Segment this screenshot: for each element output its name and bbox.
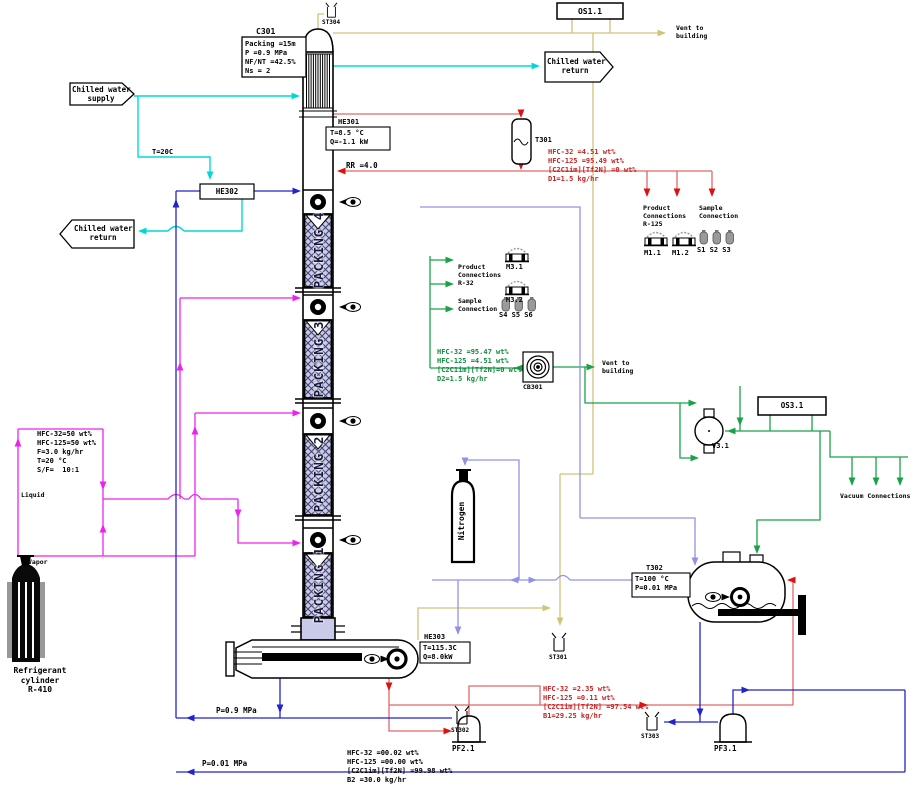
pf31-vessel — [714, 714, 752, 742]
s123-label: S1 S2 S3 — [697, 246, 731, 255]
refrigerant-cylinder — [7, 556, 45, 662]
feed-l2: HFC-125=50 wt% — [37, 439, 96, 448]
c301-info-l3: NF/NT =42.5% — [245, 58, 296, 67]
nitrogen-label: Nitrogen — [457, 486, 469, 556]
os31-label: OS3.1 — [758, 401, 826, 410]
chw-return-top-line2: return — [547, 66, 603, 75]
t302-vessel — [688, 552, 806, 635]
d1-l4: D1=1.5 kg/hr — [548, 175, 637, 184]
c301-info-l4: Ns = 2 — [245, 67, 296, 76]
he303-title: HE303 — [424, 633, 445, 642]
vapor-label: Vapor — [28, 559, 48, 567]
pipe-vent — [318, 14, 664, 640]
stream-d1-label: HFC-32 =4.51 wt%HFC-125 =95.49 wt%[C2C1i… — [548, 148, 637, 184]
r32-product-label: ProductConnectionsR-32 — [458, 264, 501, 287]
c301-info: Packing =15mP =0.9 MPaNF/NT =42.5%Ns = 2 — [245, 40, 296, 76]
st303-label: ST303 — [641, 733, 659, 740]
sight-glass-icons — [339, 198, 361, 545]
packing1-label: PACKING 1 — [311, 537, 325, 633]
pipe-solvent — [176, 191, 905, 772]
chw-return-left-label: Chilled waterreturn — [74, 224, 132, 242]
c301-title: C301 — [256, 27, 275, 37]
r125-product-label: ProductConnectionsR-125 — [643, 205, 686, 228]
r32-product-l3: R-32 — [458, 280, 501, 288]
vent-top-label: Vent tobuilding — [676, 25, 707, 41]
t301-vessel — [512, 119, 531, 164]
m32-label: M3.2 — [506, 296, 523, 305]
r32-sample-label: SampleConnection — [458, 298, 497, 314]
c301-info-l1: Packing =15m — [245, 40, 296, 49]
c301-info-l2: P =0.9 MPa — [245, 49, 296, 58]
st302-label: ST302 — [451, 727, 469, 734]
he303-info-l2: Q=8.0kW — [423, 653, 457, 662]
d2-l2: HFC-125 =4.51 wt% — [437, 357, 521, 366]
d1-l1: HFC-32 =4.51 wt% — [548, 148, 637, 157]
b1-l4: B1=29.25 kg/hr — [543, 712, 648, 721]
p-high-label: P=0.9 MPa — [216, 706, 257, 715]
b2-l3: [C2C1im][Tf2N] =99.98 wt% — [347, 767, 452, 776]
refrig-l3: R-410 — [0, 685, 80, 695]
connection-icons — [502, 230, 734, 311]
b1-l1: HFC-32 =2.35 wt% — [543, 685, 648, 694]
t302-info: T=100 °CP=0.01 MPa — [635, 575, 677, 593]
p-low-label: P=0.01 MPa — [202, 759, 247, 768]
t302-title: T302 — [646, 564, 663, 573]
vent-arrowheads — [543, 30, 667, 626]
b1-l2: HFC-125 =0.11 wt% — [543, 694, 648, 703]
st304-label: ST304 — [322, 19, 340, 26]
stream-d2-label: HFC-32 =95.47 wt%HFC-125 =4.51 wt%[C2C1i… — [437, 348, 521, 384]
vent-top-line2: building — [676, 33, 707, 41]
chw-return-top-label: Chilled waterreturn — [547, 57, 603, 75]
pipe-product-r32 — [430, 256, 908, 552]
he301-info-l2: Q=-1.1 kW — [330, 138, 368, 147]
cb301-trap — [523, 352, 553, 382]
stream-feed-label: HFC-32=50 wt%HFC-125=50 wt%F=3.0 kg/hrT=… — [37, 430, 96, 475]
diagram-canvas — [0, 0, 913, 787]
feed-l1: HFC-32=50 wt% — [37, 430, 96, 439]
he301-info: T=8.5 °CQ=-1.1 kW — [330, 129, 368, 147]
t301-label: T301 — [535, 136, 552, 145]
stream-b2-label: HFC-32 =00.02 wt%HFC-125 =00.00 wt%[C2C1… — [347, 749, 452, 785]
r32-sample-l2: Connection — [458, 306, 497, 314]
chw-supply-label: Chilled watersupply — [72, 85, 130, 103]
b2-l1: HFC-32 =00.02 wt% — [347, 749, 452, 758]
t302-info-l1: T=100 °C — [635, 575, 677, 584]
b2-l4: B2 =30.0 kg/hr — [347, 776, 452, 785]
magenta-arrowheads — [15, 295, 301, 547]
vacuum-label: Vacuum Connections — [840, 493, 910, 501]
he301-title: HE301 — [338, 118, 359, 127]
t20c-label: T=20C — [152, 148, 173, 157]
he301-info-l1: T=8.5 °C — [330, 129, 368, 138]
v31-label: V3.1 — [712, 442, 729, 451]
d1-l3: [C2C1im][Tf2N] =0 wt% — [548, 166, 637, 175]
stream-b1-label: HFC-32 =2.35 wt%HFC-125 =0.11 wt%[C2C1im… — [543, 685, 648, 721]
chw-return-top-line1: Chilled water — [547, 57, 603, 66]
d2-l1: HFC-32 =95.47 wt% — [437, 348, 521, 357]
b2-l2: HFC-125 =00.00 wt% — [347, 758, 452, 767]
b1-l3: [C2C1im][Tf2N] =97.54 wt% — [543, 703, 648, 712]
m31-label: M3.1 — [506, 263, 523, 272]
pfd-distillation-diagram: ST304 OS1.1 Vent tobuilding Chilled wate… — [0, 0, 913, 787]
os11-label: OS1.1 — [557, 7, 623, 17]
packing2-label: PACKING 2 — [311, 426, 325, 522]
pf31-label: PF3.1 — [714, 744, 737, 753]
feed-l3: F=3.0 kg/hr — [37, 448, 96, 457]
r125-sample-label: SampleConnection — [699, 205, 738, 221]
d2-l4: D2=1.5 kg/hr — [437, 375, 521, 384]
he303-reboiler — [226, 640, 418, 678]
chw-return-left-line1: Chilled water — [74, 224, 132, 233]
s456-label: S4 S5 S6 — [499, 311, 533, 320]
he303-info-l1: T=115.3C — [423, 644, 457, 653]
rr-label: RR =4.0 — [346, 161, 378, 170]
m11-label: M1.1 — [644, 249, 661, 258]
chw-return-left-line2: return — [74, 233, 132, 242]
feed-l4: T=20 °C — [37, 457, 96, 466]
packing3-label: PACKING 3 — [311, 311, 325, 407]
refrig-l2: cylinder — [0, 676, 80, 686]
chw-supply-line2: supply — [72, 94, 130, 103]
he303-info: T=115.3CQ=8.0kW — [423, 644, 457, 662]
t302-info-l2: P=0.01 MPa — [635, 584, 677, 593]
liquid-label: Liquid — [21, 492, 44, 500]
chw-supply-line1: Chilled water — [72, 85, 130, 94]
r125-product-l3: R-125 — [643, 221, 686, 229]
vent-mid-line2: building — [602, 368, 633, 376]
he302-label: HE302 — [200, 187, 254, 196]
cb301-label: CB301 — [523, 384, 543, 392]
d2-l3: [C2C1im][Tf2N]=0 wt% — [437, 366, 521, 375]
st301-label: ST301 — [549, 654, 567, 661]
feed-l5: S/F= 10:1 — [37, 466, 96, 475]
refrig-l1: Refrigerant — [0, 666, 80, 676]
r125-sample-l2: Connection — [699, 213, 738, 221]
packing4-label: PACKING 4 — [311, 202, 325, 298]
vent-mid-label: Vent tobuilding — [602, 360, 633, 376]
m12-label: M1.2 — [672, 249, 689, 258]
pf21-label: PF2.1 — [452, 744, 475, 753]
d1-l2: HFC-125 =95.49 wt% — [548, 157, 637, 166]
refrigerant-cylinder-label: RefrigerantcylinderR-410 — [0, 666, 80, 695]
